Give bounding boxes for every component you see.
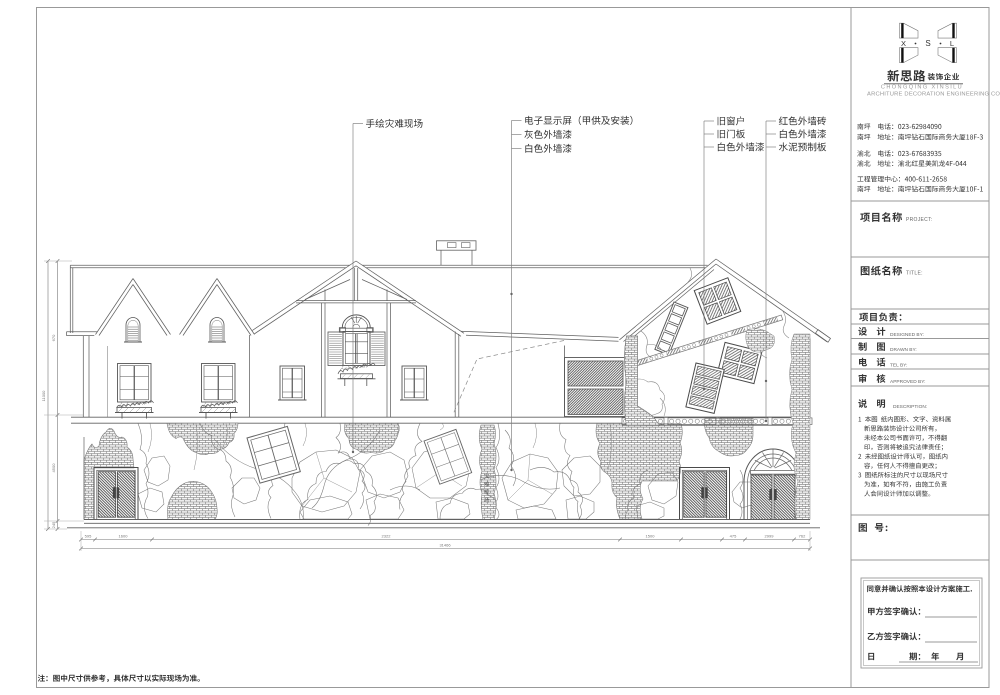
svg-text:DRAWN BY:: DRAWN BY: bbox=[890, 347, 917, 353]
svg-text:2322: 2322 bbox=[382, 534, 392, 539]
svg-text:2999: 2999 bbox=[765, 534, 775, 539]
svg-text:11000: 11000 bbox=[41, 390, 46, 402]
svg-text:TITLE:: TITLE: bbox=[906, 271, 923, 277]
svg-text:31466: 31466 bbox=[439, 543, 451, 548]
svg-text:DESIGNED BY:: DESIGNED BY: bbox=[890, 332, 924, 338]
svg-text:595: 595 bbox=[85, 534, 92, 539]
svg-text:X: X bbox=[901, 39, 906, 48]
svg-text:TEL BY:: TEL BY: bbox=[890, 363, 907, 369]
svg-text:ARCHITURE DECORATION ENGINEE: ARCHITURE DECORATION ENGINEERING CO.LTD bbox=[867, 92, 1000, 98]
svg-text:APPROVED BY:: APPROVED BY: bbox=[890, 379, 925, 385]
svg-text:L: L bbox=[950, 39, 954, 48]
svg-text:S: S bbox=[925, 39, 930, 48]
svg-text:1600: 1600 bbox=[119, 534, 129, 539]
svg-text:762: 762 bbox=[799, 534, 806, 539]
svg-text:DESCRIPTION:: DESCRIPTION: bbox=[893, 404, 927, 410]
svg-text:245: 245 bbox=[51, 521, 56, 528]
svg-text:PROJECT:: PROJECT: bbox=[906, 217, 933, 223]
svg-text:1500: 1500 bbox=[646, 534, 656, 539]
svg-text:CHONGQING XINSILU: CHONGQING XINSILU bbox=[881, 85, 963, 91]
svg-text:4500: 4500 bbox=[51, 463, 56, 473]
svg-text:670: 670 bbox=[51, 334, 56, 341]
svg-text:475: 475 bbox=[730, 534, 737, 539]
